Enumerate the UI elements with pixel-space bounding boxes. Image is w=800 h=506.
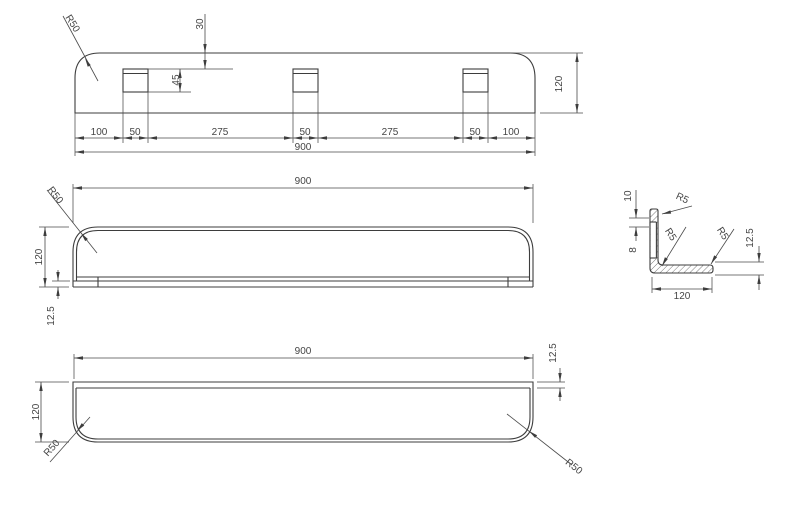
arrowhead (39, 382, 42, 391)
dim-label-275: 275 (382, 127, 399, 138)
arrowhead (558, 373, 561, 382)
arrowhead (284, 136, 293, 139)
arrowhead (524, 356, 533, 359)
dim-label-50: 50 (129, 127, 141, 138)
extension-lines (629, 218, 764, 293)
dim-label-lip-height: 12.5 (745, 228, 756, 248)
dim-label-100: 100 (91, 127, 108, 138)
dim-label-slot-offset: 30 (195, 18, 206, 30)
radius-label: R50 (63, 13, 82, 35)
extension-lines (75, 53, 583, 156)
section-view: 10 8 12.5 120 R5 R5 R5 (623, 190, 764, 302)
mounting-slot (123, 69, 148, 92)
section-profile (650, 209, 713, 273)
dimension-lines (41, 358, 572, 465)
arrowhead (318, 136, 327, 139)
arrowhead (73, 186, 82, 189)
arrowheads (39, 356, 561, 442)
arrowhead (575, 104, 578, 113)
mounting-slot (463, 69, 488, 92)
dim-label-depth: 120 (31, 403, 42, 420)
arrowhead (114, 136, 123, 139)
plan-view: 900 120 12.5 R50 R50 (31, 343, 584, 477)
arrowhead (524, 186, 533, 189)
arrowhead (757, 253, 760, 262)
dim-label-lip-height: 12.5 (46, 306, 57, 326)
fillet-radius-label: R5 (674, 191, 691, 207)
arrowhead (703, 287, 712, 290)
arrowhead (56, 272, 59, 281)
arrowheads (43, 186, 533, 296)
arrowhead (39, 433, 42, 442)
dim-label-rim-width: 12.5 (548, 343, 559, 363)
arrowhead (75, 136, 84, 139)
arrowhead (634, 209, 637, 218)
section-slot-window (651, 222, 657, 259)
arrowhead (74, 356, 83, 359)
arrowhead (528, 430, 537, 438)
dim-label-total-width: 900 (295, 142, 312, 153)
dim-label-275: 275 (212, 127, 229, 138)
arrowhead (148, 136, 157, 139)
arrowhead (662, 210, 672, 215)
arrowhead (710, 255, 718, 264)
radius-label: R50 (42, 438, 63, 459)
arrowhead (488, 136, 497, 139)
front-view-outer-outline (73, 227, 533, 287)
arrowhead (652, 287, 661, 290)
back-view-body-outline (75, 53, 535, 113)
dim-label-height: 120 (34, 248, 45, 265)
arrowhead (526, 150, 535, 153)
dim-label-slot-height: 45 (171, 74, 182, 86)
plan-view-labels: 900 120 12.5 R50 R50 (31, 343, 584, 477)
fillet-radius-label: R5 (714, 225, 730, 242)
dim-label-50: 50 (299, 127, 311, 138)
dim-label-total-width: 900 (295, 176, 312, 187)
back-view: 100 50 275 50 275 50 100 900 30 45 120 R… (63, 13, 583, 156)
back-view-labels: 100 50 275 50 275 50 100 900 30 45 120 R… (63, 13, 565, 153)
radius-label: R50 (45, 185, 65, 207)
arrowhead (56, 287, 59, 296)
arrowhead (526, 136, 535, 139)
technical-drawing-page: 100 50 275 50 275 50 100 900 30 45 120 R… (0, 0, 800, 506)
dim-label-50: 50 (469, 127, 481, 138)
arrowhead (454, 136, 463, 139)
arrowhead (558, 388, 561, 397)
arrowhead (43, 227, 46, 236)
arrowhead (83, 57, 90, 67)
dim-label-height: 120 (554, 75, 565, 92)
dim-label-top-offset: 10 (623, 190, 634, 202)
front-view-labels: 900 120 12.5 R50 (34, 176, 312, 326)
radius-label: R50 (563, 457, 585, 477)
dim-label-total-width: 900 (295, 346, 312, 357)
radius-leader-line (507, 414, 572, 465)
front-view: 900 120 12.5 R50 (34, 176, 533, 326)
dimension-lines (45, 188, 533, 299)
extension-lines (35, 354, 565, 442)
arrowhead (757, 275, 760, 284)
extension-lines (39, 184, 533, 287)
plan-view-inner-outline (76, 388, 530, 439)
arrowhead (203, 60, 206, 69)
arrowhead (575, 53, 578, 62)
dim-label-depth: 120 (674, 291, 691, 302)
mounting-slot (293, 69, 318, 92)
front-view-inner-outline (77, 231, 530, 282)
fillet-radius-label: R5 (662, 226, 678, 243)
arrowhead (75, 150, 84, 153)
dim-label-slot-width: 8 (628, 247, 639, 253)
dim-label-100: 100 (503, 127, 520, 138)
arrowhead (43, 278, 46, 287)
plan-view-outer-outline (73, 382, 533, 442)
arrowhead (203, 44, 206, 53)
arrowhead (634, 227, 637, 236)
drawing-canvas: 100 50 275 50 275 50 100 900 30 45 120 R… (0, 0, 800, 506)
